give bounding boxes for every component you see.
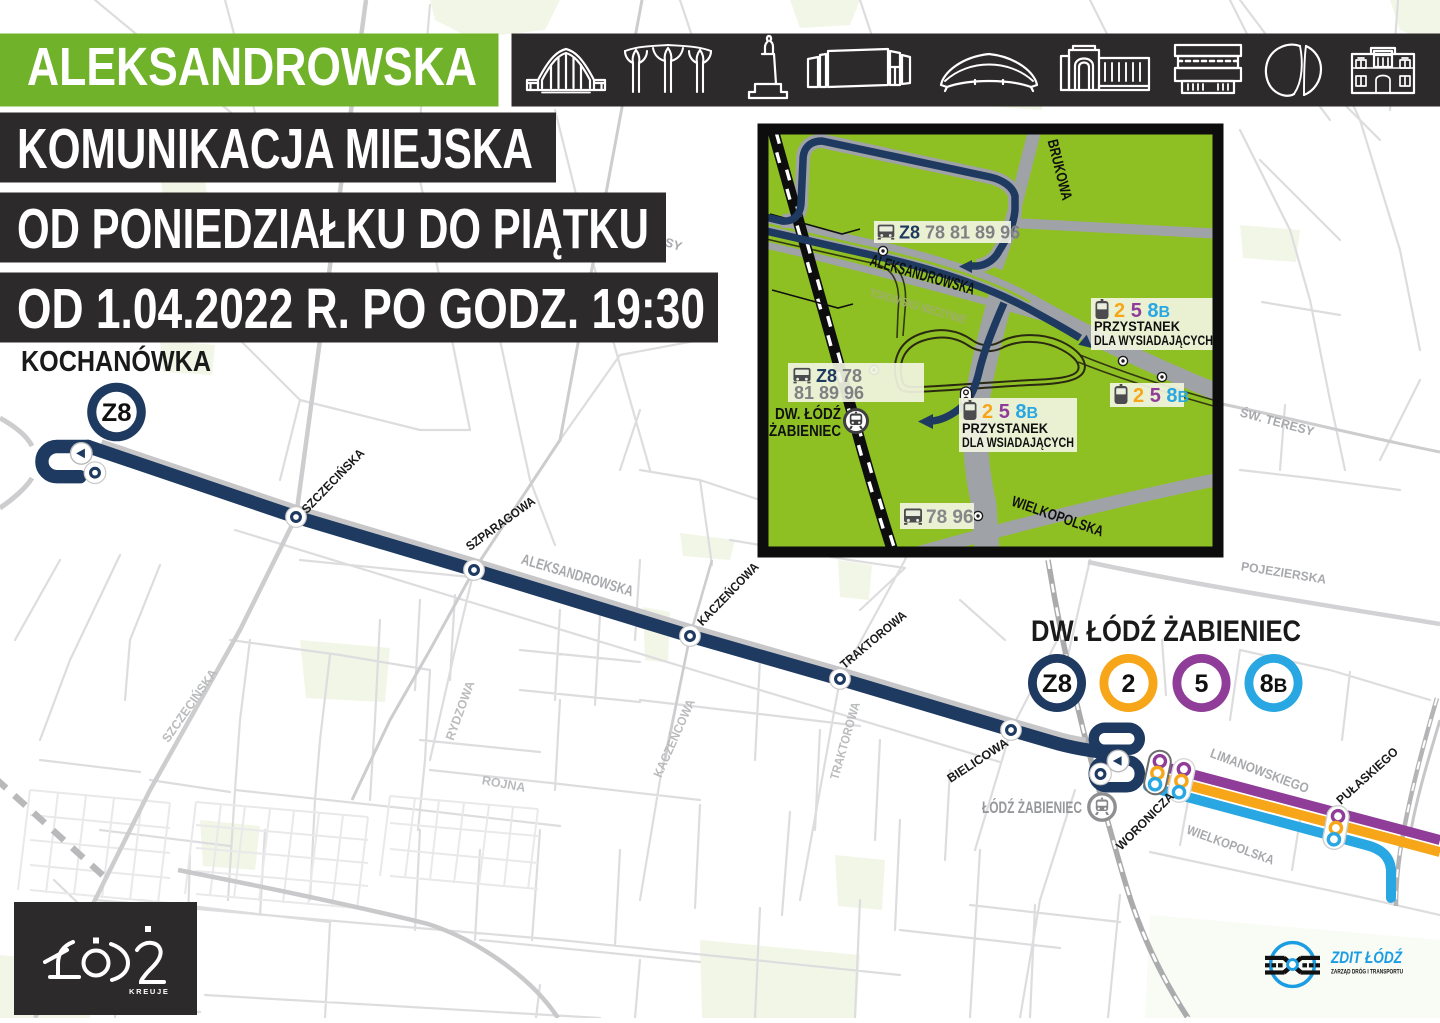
- svg-text:ŁÓDŹ ŻABIENIEC: ŁÓDŹ ŻABIENIEC: [982, 798, 1082, 817]
- svg-text:5: 5: [1195, 670, 1209, 698]
- svg-text:Z8: Z8: [102, 399, 132, 427]
- svg-text:OD 1.04.2022 R. PO GODZ. 19:30: OD 1.04.2022 R. PO GODZ. 19:30: [17, 277, 705, 341]
- svg-text:81 89 96: 81 89 96: [794, 383, 864, 403]
- svg-text:DW. ŁÓDŹ ŻABIENIEC: DW. ŁÓDŹ ŻABIENIEC: [1031, 614, 1301, 648]
- svg-text:OD PONIEDZIAŁKU DO PIĄTKU: OD PONIEDZIAŁKU DO PIĄTKU: [17, 197, 649, 261]
- svg-text:KOCHANÓWKA: KOCHANÓWKA: [21, 344, 211, 378]
- svg-text:DW. ŁÓDŹ: DW. ŁÓDŹ: [775, 405, 841, 423]
- svg-text:KOMUNIKACJA MIEJSKA: KOMUNIKACJA MIEJSKA: [17, 117, 533, 181]
- svg-text:KREUJE: KREUJE: [129, 987, 170, 996]
- svg-text:Z8: Z8: [1042, 670, 1072, 698]
- svg-text:2 5 8B: 2 5 8B: [982, 401, 1038, 423]
- svg-text:DLA WSIADAJĄCYCH: DLA WSIADAJĄCYCH: [962, 435, 1074, 450]
- svg-text:78 96: 78 96: [926, 507, 974, 528]
- svg-text:ZDIT ŁÓDŹ: ZDIT ŁÓDŹ: [1330, 948, 1403, 967]
- svg-text:Z8 78 81 89 96: Z8 78 81 89 96: [899, 223, 1020, 243]
- svg-text:2 5 8B: 2 5 8B: [1133, 385, 1189, 407]
- svg-text:PRZYSTANEK: PRZYSTANEK: [962, 421, 1048, 436]
- svg-text:ZARZĄD DRÓG I TRANSPORTU: ZARZĄD DRÓG I TRANSPORTU: [1331, 968, 1403, 976]
- svg-text:ALEKSANDROWSKA: ALEKSANDROWSKA: [27, 37, 477, 97]
- svg-text:2: 2: [1122, 670, 1136, 698]
- svg-text:ŻABIENIEC: ŻABIENIEC: [769, 423, 841, 440]
- svg-text:PRZYSTANEK: PRZYSTANEK: [1094, 319, 1180, 334]
- svg-text:DLA WYSIADAJĄCYCH: DLA WYSIADAJĄCYCH: [1094, 333, 1213, 348]
